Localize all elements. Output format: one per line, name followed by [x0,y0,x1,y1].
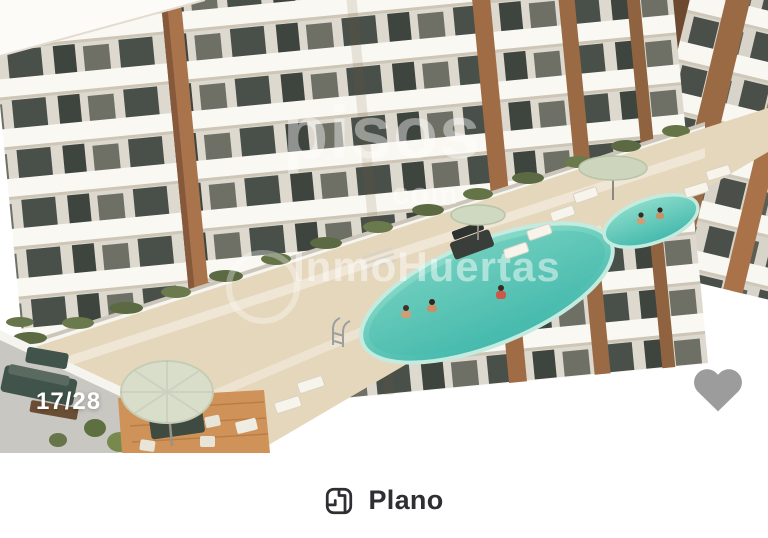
plan-button[interactable]: Plano [324,485,443,516]
agency-watermark: InmoHuertas [293,246,561,288]
photo-counter: 17/28 [36,388,101,416]
agency-logo-watermark [226,250,300,324]
listing-photo[interactable]: pisos com InmoHuertas 17/28 [0,0,768,453]
floor-plan-icon [324,486,354,516]
plan-button-label: Plano [368,485,443,516]
portal-watermark-suffix: com [392,176,459,212]
apartment-render-image [0,0,768,453]
bottom-action-bar: Plano [0,453,768,538]
heart-icon[interactable] [690,362,746,414]
portal-watermark: pisos [283,96,481,170]
listing-gallery: pisos com InmoHuertas 17/28 Plano [0,0,768,538]
